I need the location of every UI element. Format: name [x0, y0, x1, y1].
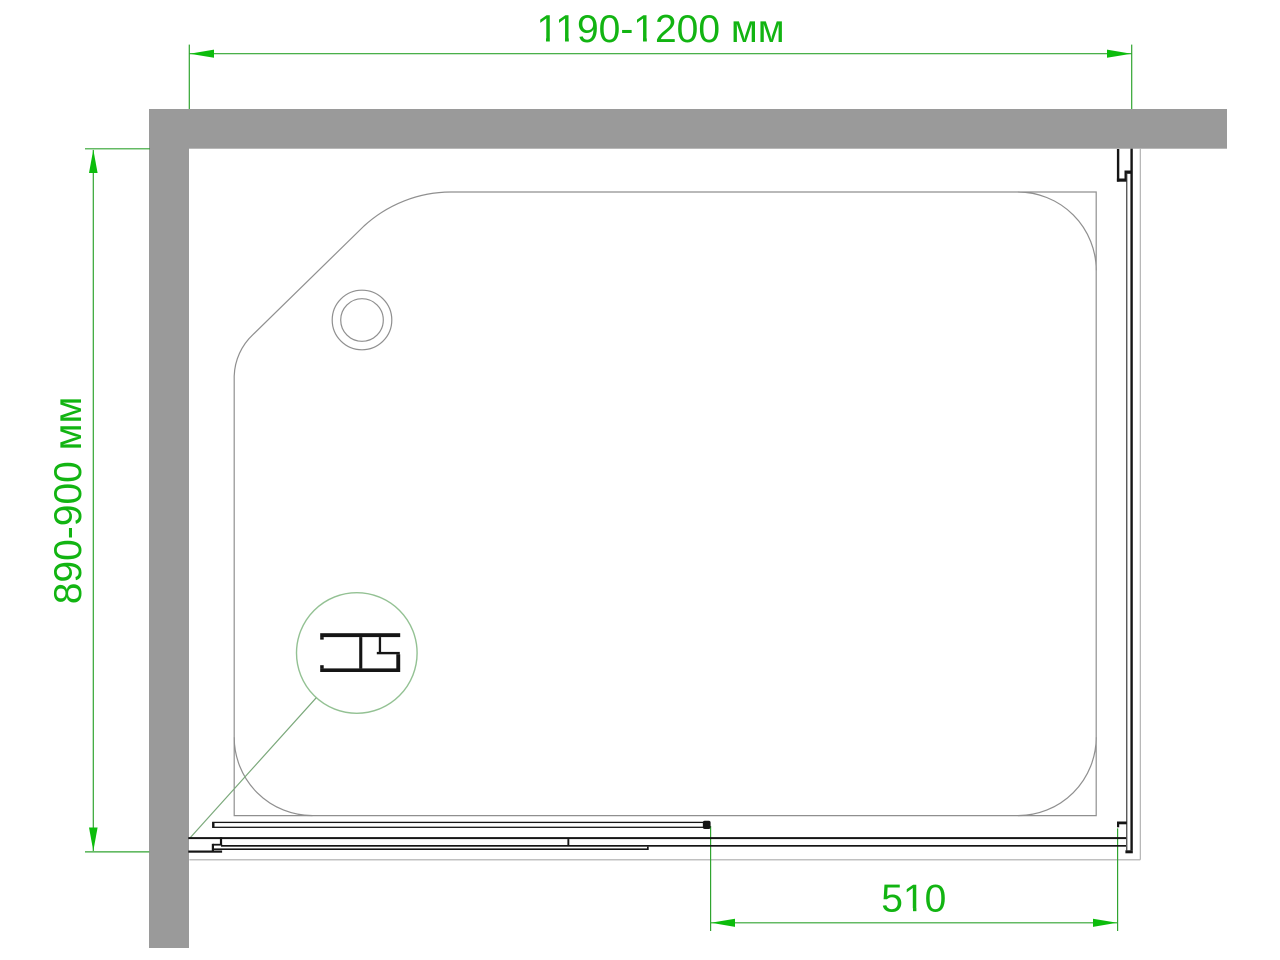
svg-text:1190-1200 мм: 1190-1200 мм [536, 8, 784, 51]
svg-text:510: 510 [881, 878, 946, 921]
svg-text:890-900 мм: 890-900 мм [47, 397, 90, 605]
